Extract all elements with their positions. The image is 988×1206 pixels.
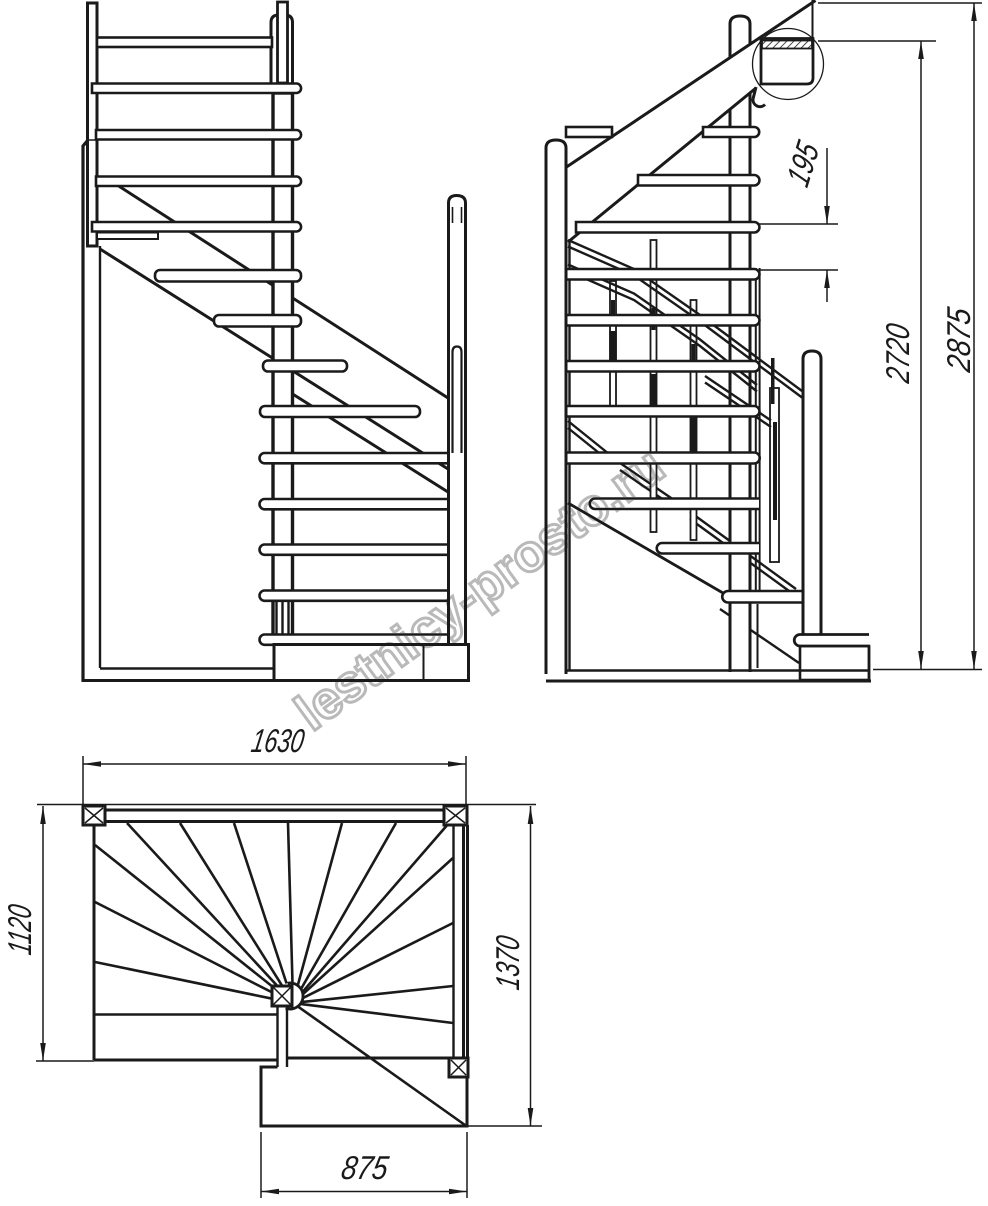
svg-text:875: 875 bbox=[339, 1150, 392, 1187]
svg-text:1120: 1120 bbox=[2, 902, 39, 958]
svg-text:1630: 1630 bbox=[249, 723, 308, 760]
svg-text:1370: 1370 bbox=[490, 933, 527, 993]
svg-text:2720: 2720 bbox=[880, 321, 917, 387]
svg-text:2875: 2875 bbox=[941, 304, 978, 375]
